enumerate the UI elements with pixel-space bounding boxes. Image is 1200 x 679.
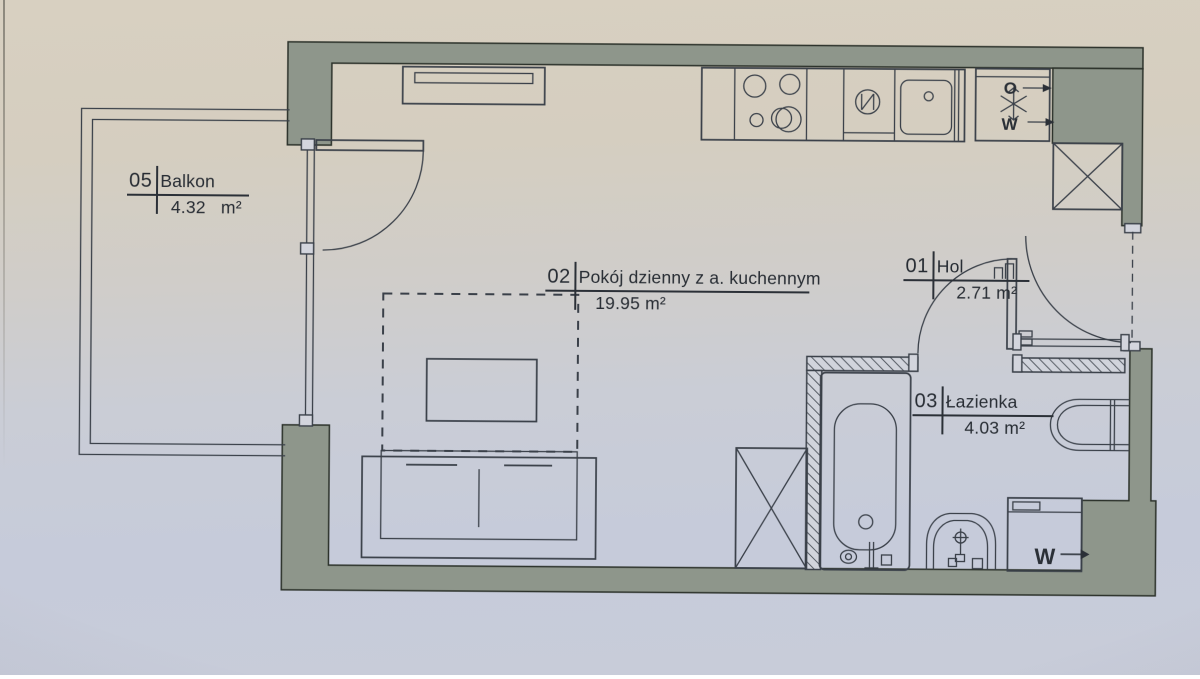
bathtub [819,373,910,571]
fridge-out-label: O [1004,79,1017,98]
table [426,359,536,422]
room-area: 4.03 m² [964,418,1053,440]
bathroom-wall-top-left [807,356,918,371]
walls [281,42,1159,596]
plan-drawing: O W [0,0,1200,679]
closet-crossbox [735,448,807,568]
label-divider [941,386,943,434]
room-label-balkon: 05 Balkon 4.32 m² [127,170,249,219]
sofa [361,450,596,559]
room-area: 19.95 m² [595,293,809,315]
room-area: 4.32 m² [171,197,249,219]
door-jamb [1013,355,1022,372]
label-divider [932,251,934,299]
balcony-door-swing-arc [323,150,424,251]
washbasin [926,513,995,569]
balcony-window [299,139,314,426]
label-divider [574,262,576,310]
entrance-door-swing-arc [1025,236,1132,343]
bathroom-wall-top-right [1013,358,1125,373]
fridge-water-label: W [1001,115,1018,134]
dishwasher [843,90,894,133]
room-label-lazienka: 03 Łazienka 4.03 m² [912,390,1053,439]
fridge: O W [975,69,1055,142]
shaft-crossbox [1053,143,1122,209]
room-number: 05 [129,170,152,193]
room-name: Balkon [152,171,215,192]
room-number: 02 [547,266,570,289]
label-divider [156,166,158,214]
washing-machine: W [1007,498,1090,572]
bed-outline [382,293,578,451]
door-jamb [909,354,918,371]
balcony-door [316,140,424,251]
entrance-door [1019,231,1133,346]
door-jamb [1125,224,1141,233]
room-label-living: 02 Pokój dzienny z a. kuchennym 19.95 m² [545,266,809,316]
room-name: Łazienka [938,391,1018,413]
room-number: 01 [905,255,928,278]
wardrobe [403,67,545,105]
room-name: Pokój dzienny z a. kuchennym [571,267,821,290]
wall-top-right-block [1052,68,1143,226]
cooktop [743,74,801,132]
wardrobe-rod [415,73,533,84]
balcony-door-leaf [316,140,423,151]
room-number: 03 [914,390,937,413]
room-area: 2.71 m² [956,282,1029,304]
balcony-railing [79,108,289,455]
floor-plan: O W [0,0,1200,679]
kitchen-sink [900,80,951,134]
toilet [1050,399,1129,451]
washer-water-label: W [1034,544,1055,569]
room-label-hol: 01 Hol 2.71 m² [903,255,1029,304]
floorplan-photo: O W [0,0,1200,675]
entrance-door-leaf [1132,232,1133,343]
kitchen-counter [701,68,964,142]
washbasin-faucet-icon [948,528,982,568]
